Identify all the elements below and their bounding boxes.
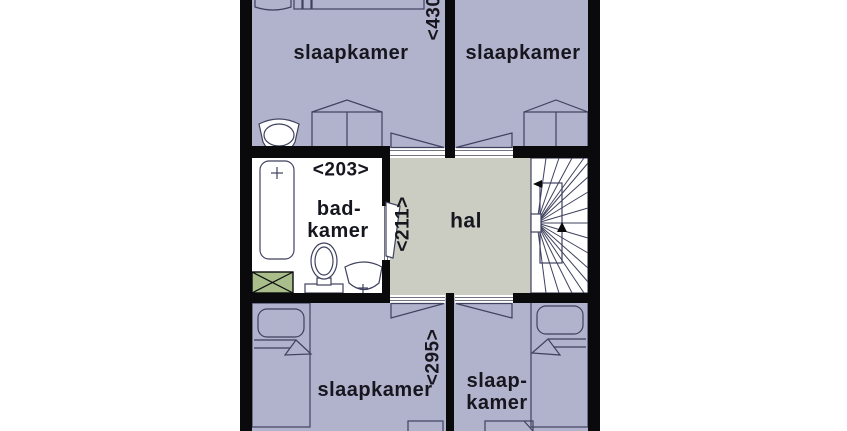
- wall-left: [240, 0, 252, 431]
- bed-icon: [531, 300, 588, 427]
- bedroom-bottom-right-label-line1: slaap-: [467, 371, 528, 391]
- wall-bottom-band-left: [240, 293, 390, 303]
- wall-bathroom-lower: [382, 260, 390, 293]
- bathroom-label-line1: bad-: [317, 199, 361, 219]
- bathroom-label-line2: kamer: [307, 221, 368, 241]
- bedroom-top-left-label: slaapkamer: [293, 43, 408, 63]
- bedroom-bottom-right-label-line2: kamer: [466, 393, 527, 413]
- staircase-icon: [531, 158, 588, 293]
- dimension-hall-depth: <211>: [394, 196, 413, 251]
- dimension-bathroom-width: <203>: [313, 161, 369, 180]
- wall-top-band-right: [513, 146, 600, 158]
- wall-bottom-band-right: [513, 293, 600, 303]
- wall-top-band-left: [240, 146, 390, 158]
- wall-bathroom-upper: [382, 152, 390, 206]
- wall-right: [588, 0, 600, 431]
- bedroom-top-right-label: slaapkamer: [465, 43, 580, 63]
- dimension-bottom-width: <295>: [424, 329, 443, 385]
- duct-shaft-icon: [252, 272, 293, 293]
- floorplan: slaapkamer slaapkamer <430 <203> bad- ka…: [0, 0, 847, 431]
- wall-top-middle: [445, 0, 455, 158]
- bed-icon: [252, 303, 311, 427]
- wall-bottom-middle: [446, 293, 454, 431]
- hall-label: hal: [450, 211, 482, 232]
- dimension-top-width: <430: [425, 0, 444, 40]
- bedroom-bottom-left-label: slaapkamer: [317, 380, 432, 400]
- stair-hub: [531, 214, 541, 232]
- bathtub-icon: [260, 161, 294, 259]
